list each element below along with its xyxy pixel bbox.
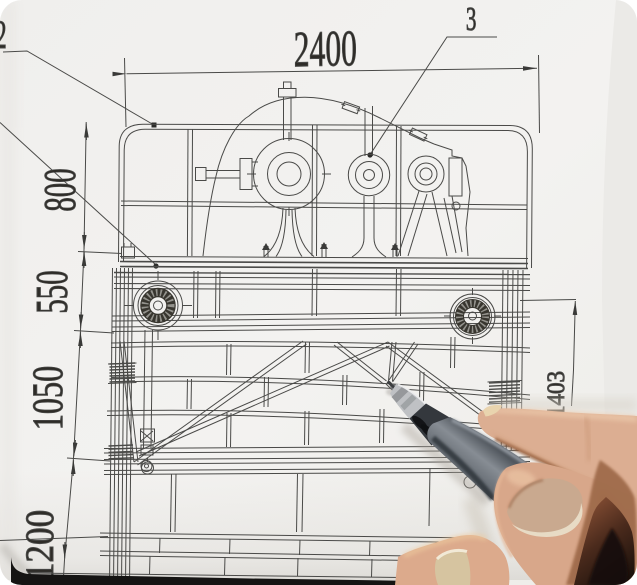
svg-text:800: 800 bbox=[36, 168, 86, 211]
svg-text:550: 550 bbox=[28, 270, 78, 313]
svg-text:1050: 1050 bbox=[25, 366, 73, 430]
svg-text:2400: 2400 bbox=[293, 20, 357, 78]
svg-text:2: 2 bbox=[0, 13, 7, 57]
svg-text:3: 3 bbox=[466, 1, 477, 38]
svg-text:1200: 1200 bbox=[18, 510, 63, 580]
